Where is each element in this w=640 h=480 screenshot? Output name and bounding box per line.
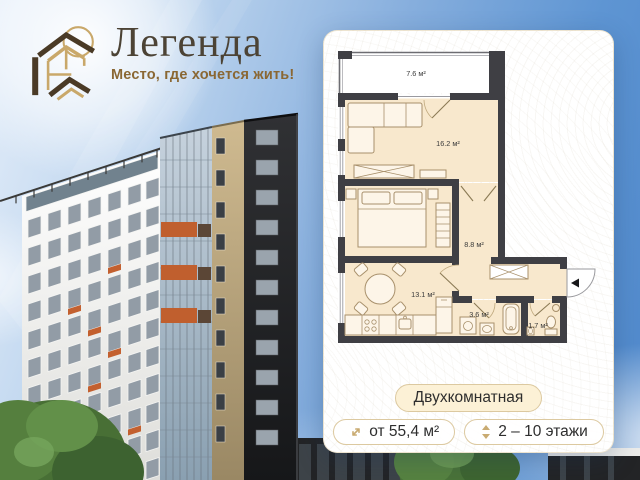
room-area-label-wc: 1.7 м²: [528, 321, 548, 330]
room-area-label-bathroom: 3.6 м²: [469, 310, 489, 319]
room-area-label-hallway: 8.8 м²: [464, 240, 484, 249]
dark-section: [244, 114, 298, 480]
room-area-label-living: 16.2 м²: [436, 139, 460, 148]
room-area-label-balcony: 7.6 м²: [406, 69, 426, 78]
entrance-door: [567, 269, 595, 297]
apartment-type-badge: Двухкомнатная: [395, 384, 543, 412]
apartment-badges: Двухкомнатная от 55,4 м² 2 – 10 этажи: [324, 384, 613, 445]
room-area-label-kitchen: 13.1 м²: [411, 290, 435, 299]
area-badge-label: от 55,4 м²: [369, 423, 439, 441]
floors-badge: 2 – 10 этажи: [464, 419, 604, 445]
floors-badge-label: 2 – 10 этажи: [498, 423, 588, 441]
floorplan-card: 7.6 м² 16.2 м² 8.8 м² 13.1 м² 3.6 м² 1.7…: [323, 30, 614, 453]
logo-tagline: Место, где хочется жить!: [111, 67, 294, 83]
logo: Легенда Место, где хочется жить!: [20, 16, 294, 102]
glass-section: [160, 126, 212, 480]
apartment-type-label: Двухкомнатная: [414, 389, 524, 407]
area-diagonal-arrows-icon: [349, 425, 363, 439]
logo-house-icon: [20, 16, 102, 102]
floor-plan: 7.6 м² 16.2 м² 8.8 м² 13.1 м² 3.6 м² 1.7…: [338, 51, 600, 351]
promo-scene: Легенда Место, где хочется жить!: [0, 0, 640, 480]
floors-up-down-icon: [480, 424, 492, 440]
logo-title: Легенда: [111, 22, 294, 64]
area-badge: от 55,4 м²: [333, 419, 455, 445]
tan-section: [212, 121, 244, 480]
